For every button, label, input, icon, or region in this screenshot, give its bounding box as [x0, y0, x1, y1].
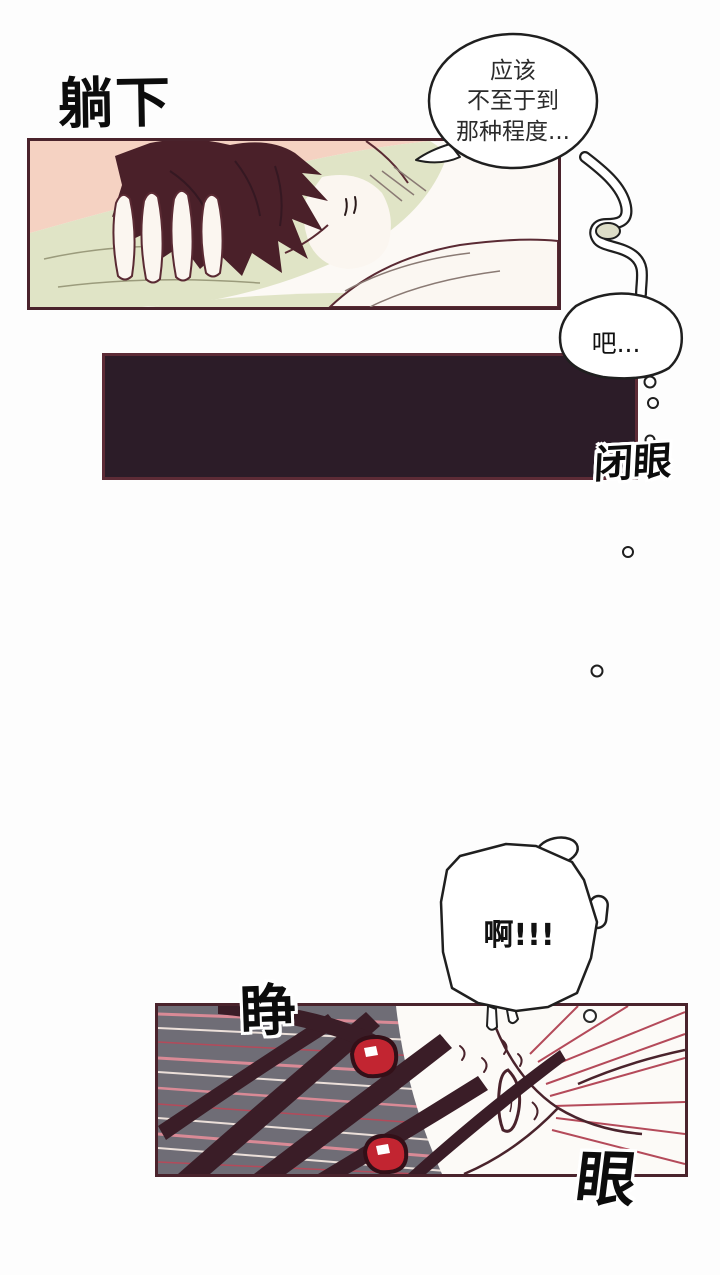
sfx-open-eyes-left: 睁: [239, 983, 297, 1041]
sfx-lie-down: 躺下: [58, 75, 173, 132]
panel-sleeping: [27, 138, 561, 310]
sfx-open-eyes-right: 眼: [572, 1149, 639, 1211]
thought-bubble-text: 应该 不至于到 那种程度...: [433, 56, 593, 147]
bubble-trail-dot-in-panel: [584, 1010, 596, 1022]
shout-bubble-blob-top: [534, 834, 580, 868]
shout-bubble-blob-right: [587, 895, 608, 929]
wide-eye-bottom: [365, 1136, 406, 1172]
chain-loop-bead: [596, 223, 620, 239]
panel-black: [102, 353, 638, 480]
thought-chain: [585, 157, 642, 294]
sfx-close-eyes: 闭眼: [593, 442, 673, 485]
shout-bubble-blob-left: [451, 882, 467, 898]
thought-chain-outline: [585, 157, 642, 294]
sleeping-illustration: [30, 141, 558, 307]
comic-page: 应该 不至于到 那种程度... 吧... 啊!!! 躺下 闭眼 睁 眼: [0, 0, 720, 1275]
thought-tail-text: 吧...: [572, 324, 660, 360]
shout-bubble-text: 啊!!!: [460, 910, 578, 954]
wide-eye-top: [352, 1037, 396, 1076]
